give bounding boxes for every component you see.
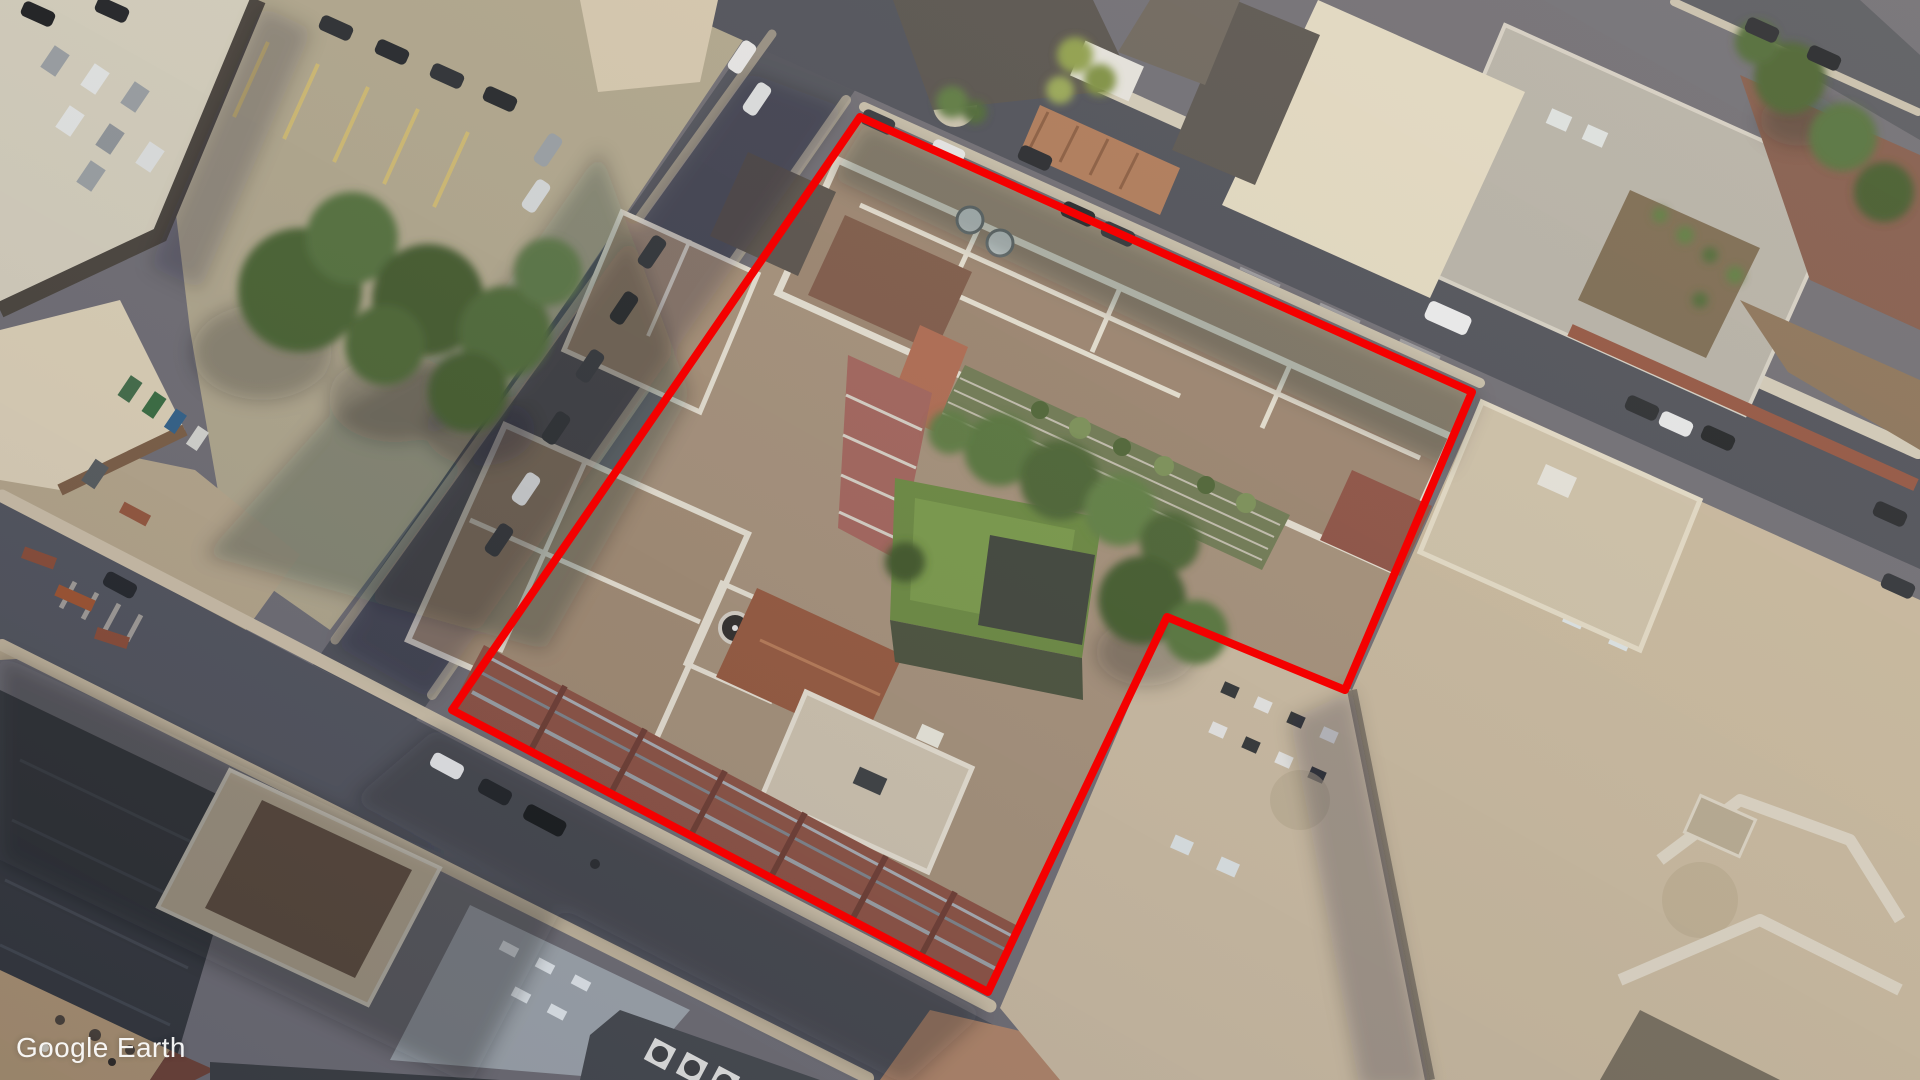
google-earth-aerial-view[interactable]: Google Earth (0, 0, 1920, 1080)
google-earth-watermark: Google Earth (16, 1032, 186, 1064)
aerial-photo-canvas (0, 0, 1920, 1080)
